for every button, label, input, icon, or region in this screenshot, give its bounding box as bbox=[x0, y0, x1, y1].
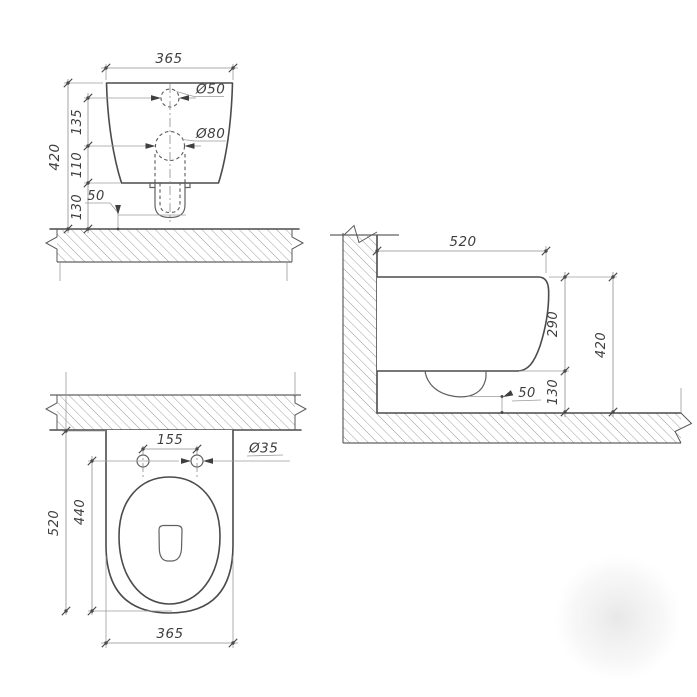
dim-front-130: 130 bbox=[70, 194, 85, 220]
toilet-outline-plan bbox=[106, 430, 233, 613]
dim-plan-holes-to-front: 440 bbox=[73, 499, 88, 525]
dim-side-130: 130 bbox=[546, 379, 561, 405]
dim-front-hole-small: Ø50 bbox=[195, 82, 225, 98]
dim-front-height-total: 420 bbox=[47, 143, 63, 170]
dim-side-height-total: 420 bbox=[594, 332, 609, 358]
dim-side-body-height: 290 bbox=[546, 311, 561, 337]
dim-front-drain-gap: 50 bbox=[87, 189, 105, 204]
dim-front-110: 110 bbox=[70, 152, 85, 178]
dim-plan-hole-spacing: 155 bbox=[157, 433, 183, 448]
watermark-shadow bbox=[554, 554, 682, 682]
dim-plan-hole-diameter: Ø35 bbox=[248, 441, 278, 457]
dim-side-depth: 520 bbox=[449, 234, 476, 250]
dim-plan-width: 365 bbox=[156, 626, 183, 642]
dim-front-135: 135 bbox=[70, 109, 85, 135]
dim-plan-depth: 520 bbox=[47, 510, 62, 536]
technical-drawing-canvas: Ø50 Ø80 365 420 bbox=[0, 0, 697, 697]
dim-front-hole-large: Ø80 bbox=[195, 126, 225, 142]
dim-side-drain-gap: 50 bbox=[518, 386, 536, 401]
dim-front-width: 365 bbox=[155, 51, 182, 67]
callout-hole-35: Ø35 bbox=[247, 441, 283, 457]
toilet-body-side bbox=[377, 277, 549, 371]
